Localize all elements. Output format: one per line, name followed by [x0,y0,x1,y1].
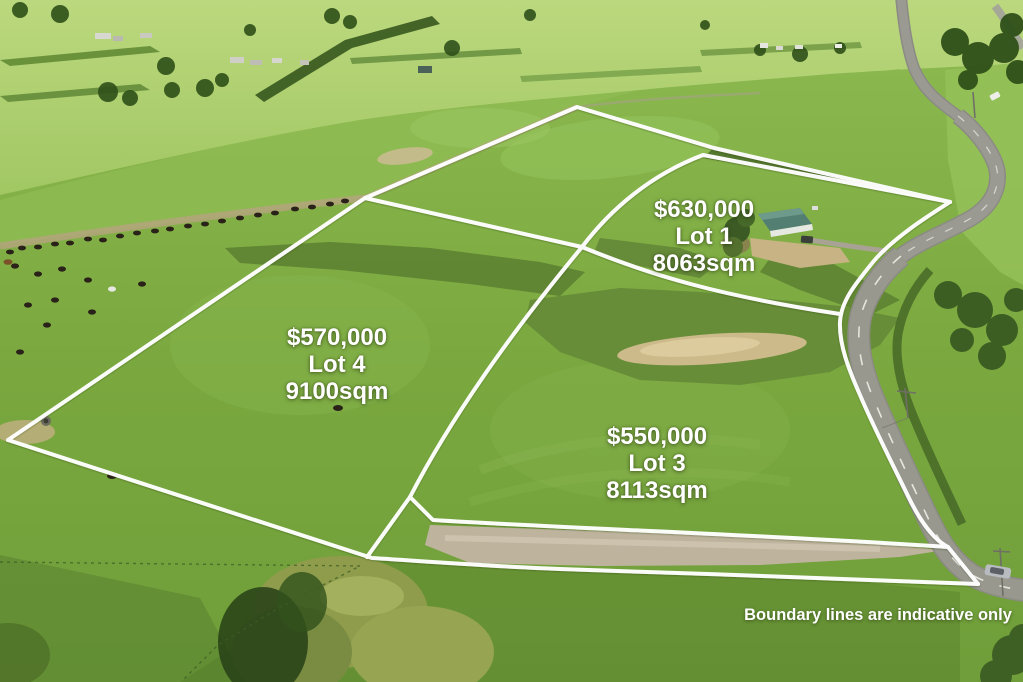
boundary-disclaimer: Boundary lines are indicative only [744,606,1012,624]
lot1-label: $630,000 Lot 1 8063sqm [653,196,756,277]
aerial-scene [0,0,1023,682]
lot1-area: 8063sqm [653,250,756,277]
lot3-area: 8113sqm [606,477,707,504]
aerial-listing-photo: $630,000 Lot 1 8063sqm $570,000 Lot 4 91… [0,0,1023,682]
lot3-label: $550,000 Lot 3 8113sqm [606,423,707,504]
lot4-label: $570,000 Lot 4 9100sqm [286,324,389,405]
lot4-area: 9100sqm [286,378,389,405]
lot3-name: Lot 3 [606,450,707,477]
lot1-name: Lot 1 [653,223,756,250]
lot1-price: $630,000 [653,196,756,223]
lot4-name: Lot 4 [286,351,389,378]
lot3-price: $550,000 [606,423,707,450]
lot4-price: $570,000 [286,324,389,351]
